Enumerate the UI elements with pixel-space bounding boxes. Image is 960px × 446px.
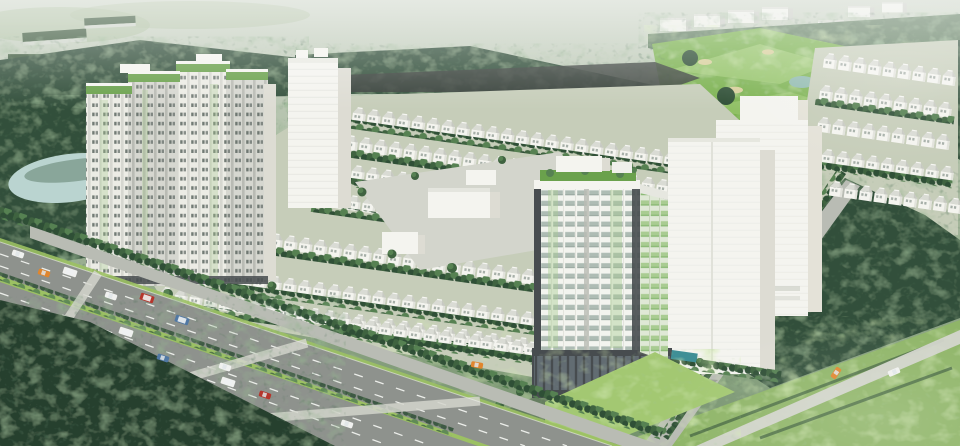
accent-strip [632,188,640,352]
penthouse [556,156,602,172]
tower-side-face [640,192,668,362]
aerial-rendering [0,0,960,446]
plaza-building [466,170,496,185]
accent-strip [584,188,589,350]
parapet [534,180,640,189]
rendering-canvas [0,0,960,446]
plaza-building [382,232,425,254]
tower-side [264,84,276,280]
plaza-building [428,188,500,218]
accent-strip [534,188,541,350]
